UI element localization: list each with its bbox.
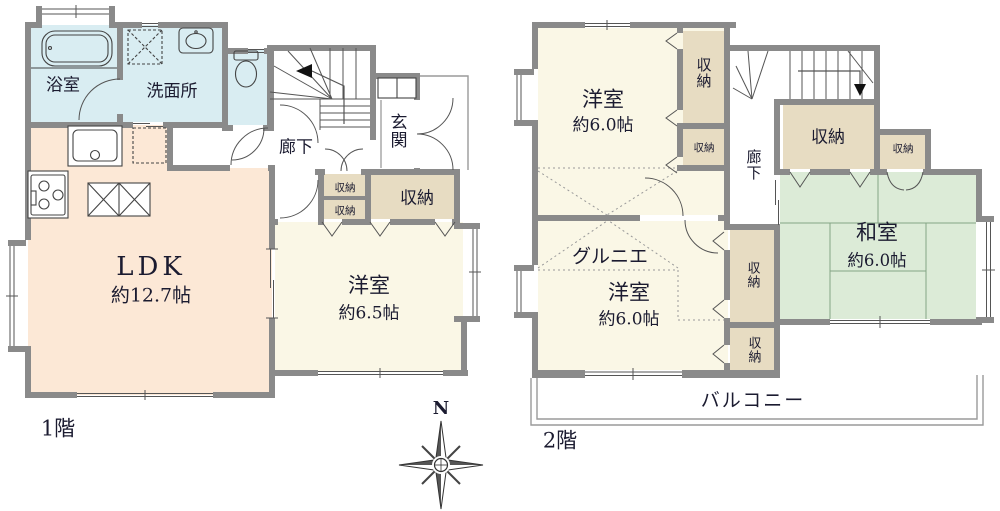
f1-stairs-up-arrow [296, 64, 312, 78]
balcony-label: バルコニー [701, 392, 806, 411]
storage-label: 収納 [811, 130, 845, 147]
room-label-western-2f-top: 洋室 [582, 90, 624, 111]
room-label-ldk: LDK [116, 254, 186, 280]
entrance-door-right [417, 134, 453, 170]
f1-western-door [280, 180, 318, 218]
room-label-bath: 浴室 [46, 78, 80, 95]
room-size-western-2f-bottom: 約6.0帖 [598, 312, 659, 329]
storage-label: 収納 [335, 206, 356, 217]
room-label-grenier: グルニエ [572, 248, 648, 267]
storage-label: 収納 [335, 183, 356, 194]
room-size-western-2f-top: 約6.0帖 [572, 118, 633, 135]
room-label-hallway-2f: 廊下 [746, 149, 761, 181]
room-size-western-1f: 約6.5帖 [338, 306, 399, 323]
room-label-entrance: 玄関 [388, 113, 405, 149]
floorplan-canvas: 浴室 洗面所 廊下 玄関 収納 収納 収納 LDK 約12.7帖 洋室 約6.5… [0, 0, 1000, 511]
storage-label: 収納 [696, 57, 711, 89]
storage-label: 収納 [400, 191, 434, 208]
toilet-door [232, 128, 264, 160]
f2-stairs-down-arrow [854, 84, 866, 96]
room-label-japanese: 和室 [856, 223, 898, 244]
entrance-door-left [417, 98, 453, 134]
storage-label: 収納 [746, 261, 759, 289]
stove-counter [28, 171, 68, 218]
f2-stairs [733, 51, 873, 99]
room-label-hallway-1f: 廊下 [279, 140, 313, 157]
storage-label: 収納 [747, 336, 760, 364]
storage-label: 収納 [694, 143, 715, 154]
room-label-western-1f: 洋室 [348, 276, 390, 297]
washroom-floor [120, 25, 222, 122]
room-fills [28, 25, 976, 395]
compass-rose [399, 421, 483, 509]
room-label-western-2f-bottom: 洋室 [608, 283, 650, 304]
compass-north-label: N [433, 400, 449, 418]
room-size-japanese: 約6.0帖 [847, 253, 906, 270]
entrance-porch-outline [420, 76, 468, 170]
room-size-ldk: 約12.7帖 [111, 287, 191, 306]
floor2-label: 2階 [543, 431, 577, 452]
storage-label: 収納 [893, 144, 914, 155]
floor1-label: 1階 [41, 419, 75, 440]
room-label-washroom: 洗面所 [147, 84, 198, 101]
f1-stairs [270, 48, 370, 130]
